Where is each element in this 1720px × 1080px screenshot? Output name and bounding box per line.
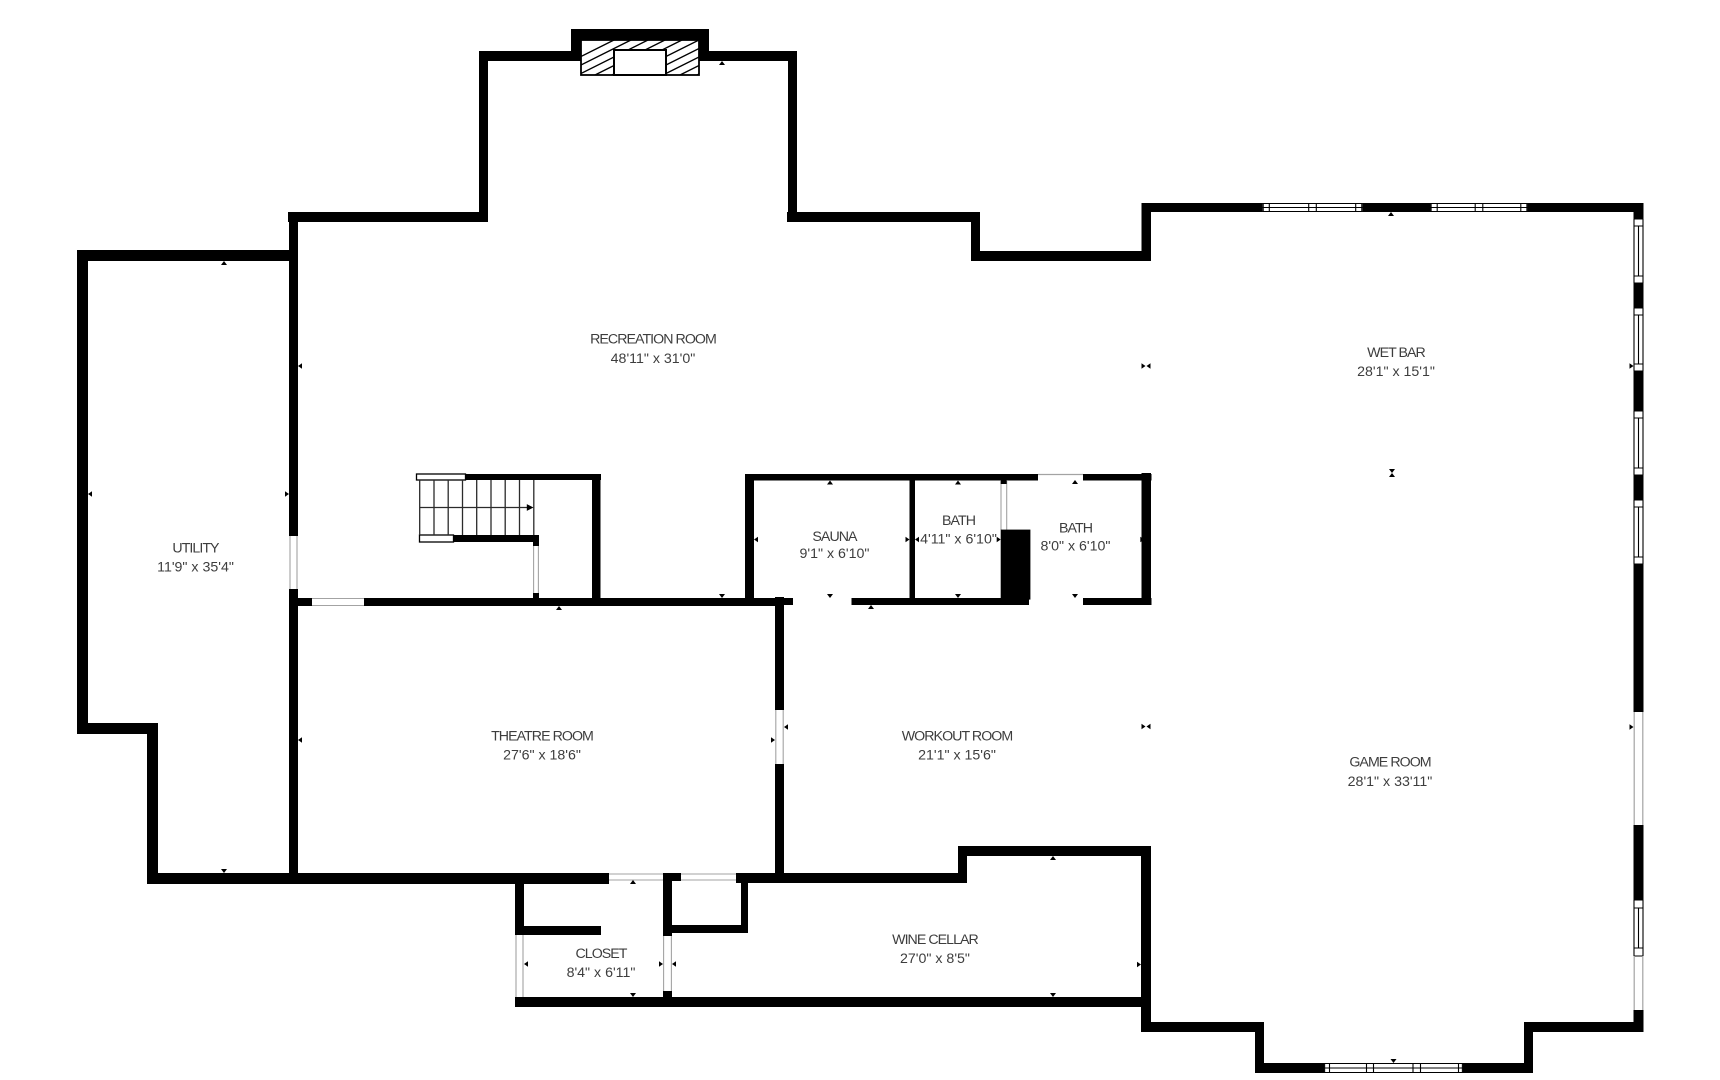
- svg-text:27'6" x 18'6": 27'6" x 18'6": [503, 748, 581, 764]
- svg-text:28'1" x 15'1": 28'1" x 15'1": [1357, 364, 1435, 380]
- svg-text:28'1" x 33'11": 28'1" x 33'11": [1348, 774, 1433, 790]
- svg-text:48'11" x 31'0": 48'11" x 31'0": [611, 351, 696, 367]
- svg-text:GAME ROOM: GAME ROOM: [1349, 755, 1430, 771]
- svg-text:CLOSET: CLOSET: [575, 946, 627, 962]
- svg-text:WINE CELLAR: WINE CELLAR: [892, 932, 978, 948]
- svg-text:8'0" x 6'10": 8'0" x 6'10": [1041, 539, 1111, 555]
- svg-text:WET BAR: WET BAR: [1367, 345, 1425, 361]
- svg-text:WORKOUT ROOM: WORKOUT ROOM: [902, 729, 1013, 745]
- svg-text:SAUNA: SAUNA: [812, 529, 858, 545]
- svg-text:4'11" x 6'10": 4'11" x 6'10": [920, 532, 997, 548]
- svg-text:THEATRE ROOM: THEATRE ROOM: [491, 729, 593, 745]
- svg-text:UTILITY: UTILITY: [172, 540, 220, 556]
- svg-text:27'0" x 8'5": 27'0" x 8'5": [900, 951, 970, 967]
- svg-text:8'4" x 6'11": 8'4" x 6'11": [567, 965, 636, 981]
- svg-text:RECREATION ROOM: RECREATION ROOM: [590, 332, 716, 348]
- svg-text:21'1" x 15'6": 21'1" x 15'6": [918, 748, 996, 764]
- svg-text:11'9" x 35'4": 11'9" x 35'4": [157, 560, 234, 576]
- svg-text:BATH: BATH: [942, 513, 976, 529]
- svg-text:BATH: BATH: [1059, 521, 1093, 537]
- svg-text:9'1" x 6'10": 9'1" x 6'10": [800, 546, 870, 562]
